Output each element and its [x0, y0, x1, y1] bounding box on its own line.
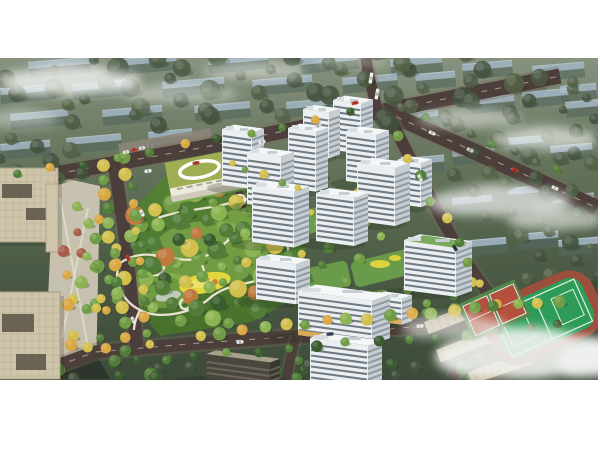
- vehicle: [326, 332, 333, 336]
- office-courtyard: [16, 354, 46, 370]
- office-wing: [46, 184, 58, 252]
- office-courtyard: [2, 314, 34, 332]
- masterplan-render: [0, 58, 598, 380]
- aerial-render-scene: [0, 58, 598, 380]
- office-tower: [0, 292, 64, 380]
- vehicle: [236, 340, 243, 344]
- background-housing-slab: [470, 237, 507, 256]
- fog-cloud: [312, 58, 388, 67]
- play-spot: [370, 260, 390, 268]
- page-background: [0, 0, 600, 450]
- play-spot: [389, 255, 401, 261]
- office-courtyard: [26, 208, 48, 220]
- office-courtyard: [2, 184, 32, 198]
